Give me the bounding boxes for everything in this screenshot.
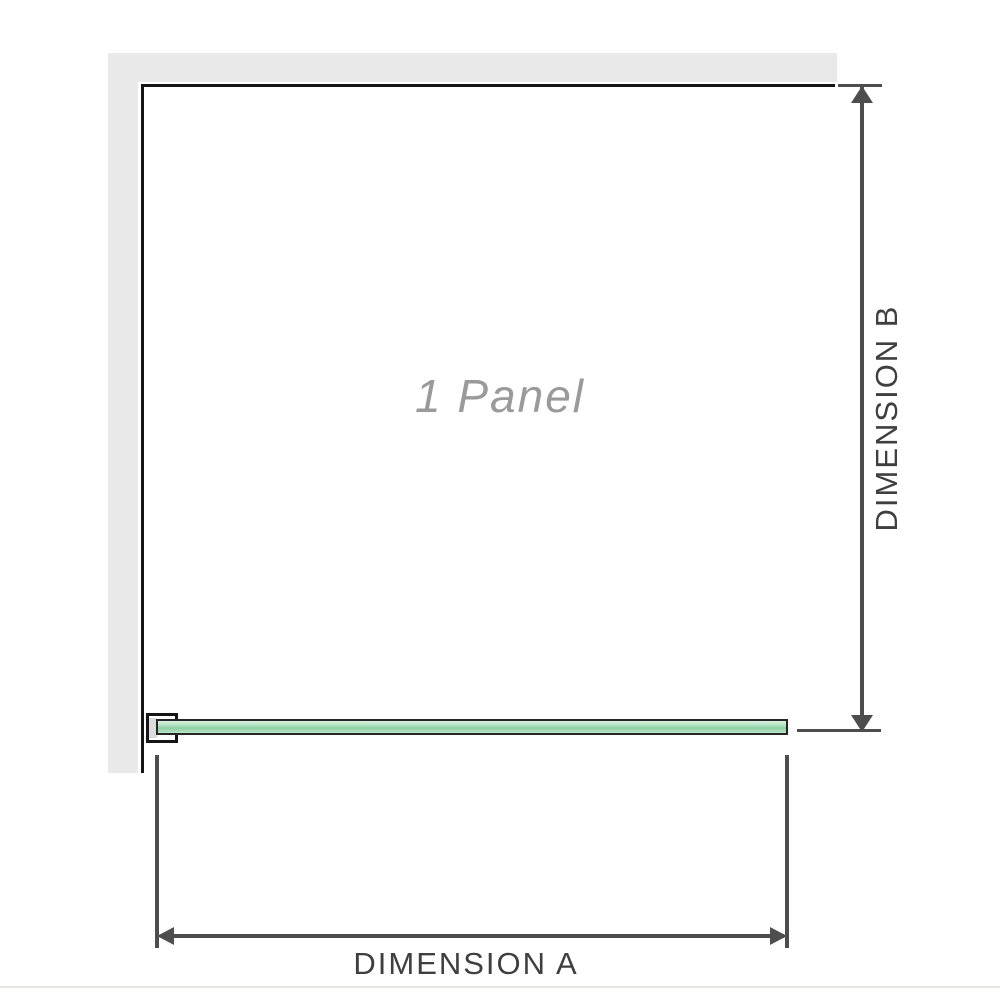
dimension-a-extension-right [785,755,789,948]
arrow-right-icon [770,927,787,945]
panel-count-label: 1 Panel [415,369,585,423]
dimension-b-line [860,87,864,723]
shower-panel-diagram: 1 Panel DIMENSION B DIMENSION A [0,0,1000,1000]
arrow-down-icon [851,715,873,732]
dimension-a-line [162,934,784,938]
panel-outline-left [141,84,144,773]
arrow-up-icon [851,86,873,103]
page-bottom-edge-line [0,986,1000,988]
wall-top [108,53,837,82]
glass-panel [156,719,788,735]
arrow-left-icon [157,927,174,945]
dimension-a-extension-left [155,755,159,948]
wall-left [108,53,138,773]
dimension-a-label: DIMENSION A [353,946,578,982]
dimension-b-label: DIMENSION B [869,305,905,532]
panel-outline-top [141,84,835,87]
